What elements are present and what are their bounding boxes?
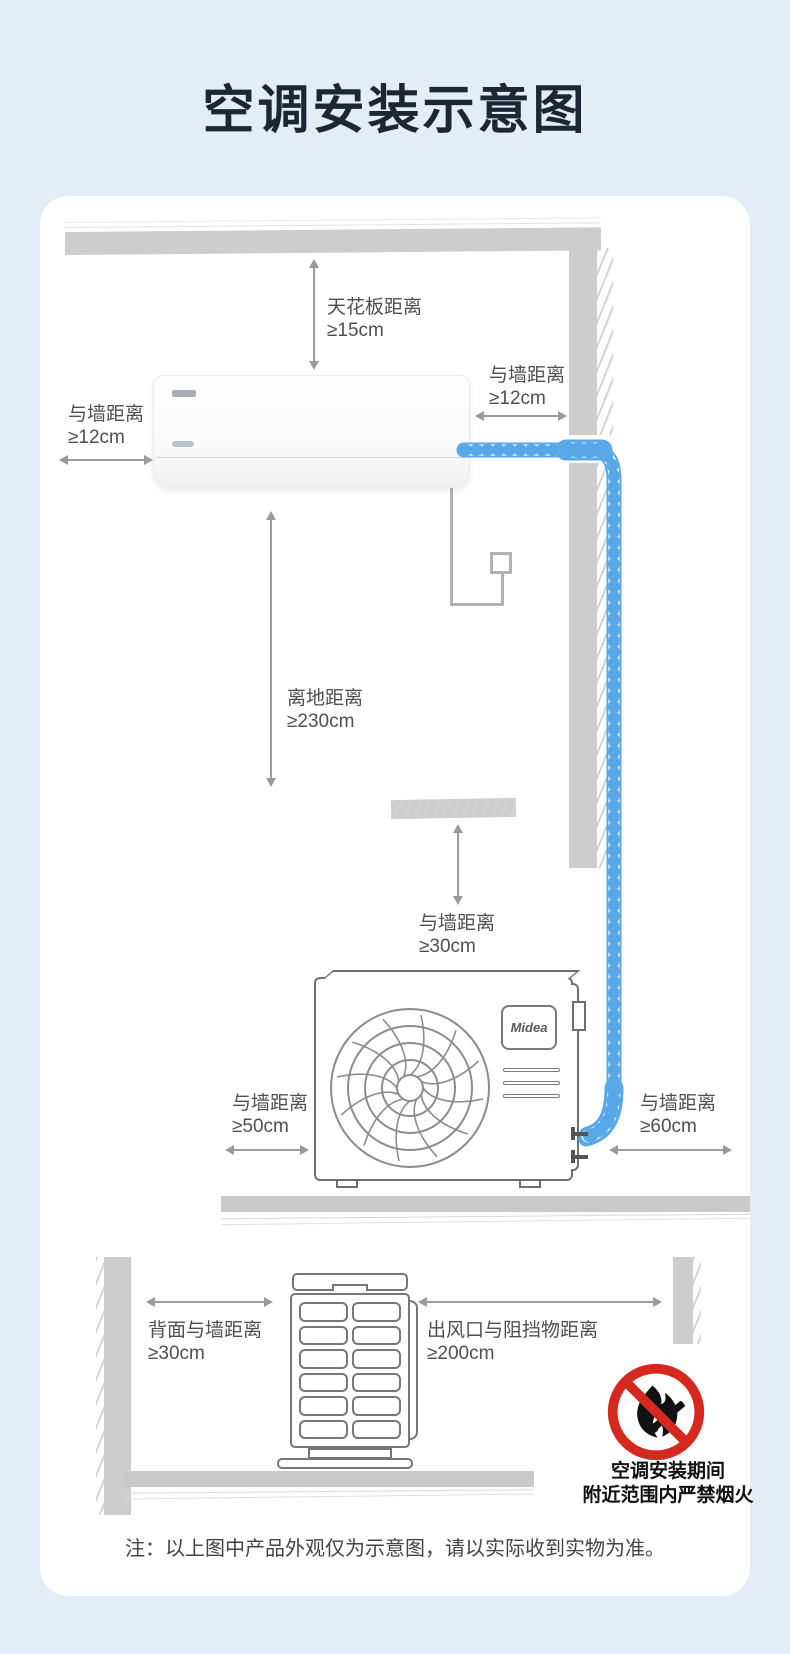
diagram-card: 天花板距离 ≥15cm 与墙距离 ≥12cm 与墙距离 ≥12cm 离地距离 ≥… — [40, 196, 750, 1596]
power-cord-drop — [450, 488, 453, 606]
outlet-distance-arrow — [427, 1301, 653, 1303]
topview-unit — [290, 1293, 410, 1448]
indoor-unit — [153, 375, 470, 488]
outdoor-unit-bracket — [572, 1001, 586, 1031]
topview-grille-cell — [352, 1373, 401, 1393]
outdoor-right-distance-label: 与墙距离 ≥60cm — [640, 1092, 716, 1138]
floor-distance-arrow — [270, 520, 272, 778]
topview-grille-cell — [352, 1420, 401, 1440]
obstacle-wall-hatch — [693, 1257, 701, 1344]
topview-unit-pedestal-base — [277, 1458, 413, 1469]
mounting-shelf — [391, 798, 516, 819]
midea-logo-badge: Midea — [501, 1005, 557, 1050]
topview-unit-cap — [292, 1273, 408, 1291]
right-wall-upper — [569, 248, 597, 435]
no-open-flame-icon — [603, 1359, 709, 1465]
topview-grille-cell — [299, 1326, 348, 1346]
warning-caption: 空调安装期间 附近范围内严禁烟火 — [582, 1460, 753, 1508]
right-wall-distance-label: 与墙距离 ≥12cm — [489, 364, 565, 410]
floor-distance-label: 离地距离 ≥230cm — [287, 687, 363, 733]
obstacle-wall — [673, 1257, 693, 1344]
outdoor-unit: Midea — [314, 977, 573, 1181]
back-wall-distance-arrow — [155, 1301, 264, 1303]
page-background: 空调安装示意图 天花板距离 ≥15cm 与墙距离 ≥12cm 与墙距离 — [0, 0, 790, 1654]
outdoor-left-distance-arrow — [234, 1149, 300, 1151]
outdoor-left-distance-label: 与墙距离 ≥50cm — [232, 1092, 308, 1138]
topview-grille-cell — [299, 1373, 348, 1393]
outdoor-unit-foot — [519, 1179, 541, 1188]
topview-grille-cell — [352, 1349, 401, 1369]
topview-unit-notch — [332, 1284, 368, 1291]
outdoor-unit-louver — [503, 1068, 560, 1072]
left-wall-distance-arrow — [68, 459, 144, 461]
right-wall-lower — [569, 463, 597, 868]
outdoor-unit-louver — [503, 1081, 560, 1085]
power-cord-plug — [501, 574, 504, 606]
page-title: 空调安装示意图 — [0, 68, 790, 143]
back-wall-distance-label: 背面与墙距离 ≥30cm — [148, 1319, 262, 1365]
indoor-unit-logo-mark — [172, 441, 194, 447]
ground-platform — [221, 1196, 750, 1212]
left-wall-distance-label: 与墙距离 ≥12cm — [68, 403, 144, 449]
ceiling-distance-label: 天花板距离 ≥15cm — [327, 296, 422, 342]
topview-grille-cell — [299, 1420, 348, 1440]
right-wall-lower-hatch — [597, 463, 613, 868]
indoor-unit-brand-mark — [172, 390, 196, 397]
topview-grille-cell — [352, 1302, 401, 1322]
floor — [125, 1471, 534, 1487]
outdoor-unit-top-face — [323, 970, 581, 979]
topview-grille-cell — [299, 1396, 348, 1416]
topview-grille-cell — [352, 1326, 401, 1346]
ceiling-distance-arrow — [313, 268, 315, 361]
outlet-distance-label: 出风口与阻挡物距离 ≥200cm — [427, 1319, 598, 1365]
outdoor-top-distance-arrow — [457, 833, 459, 896]
outdoor-unit-louver — [503, 1094, 560, 1098]
topview-grille-cell — [299, 1302, 348, 1322]
right-wall-upper-hatch — [597, 248, 613, 435]
right-wall-distance-arrow — [484, 415, 558, 417]
topview-grille-cell — [352, 1396, 401, 1416]
ceiling — [65, 227, 601, 255]
left-wall-hatch — [96, 1257, 104, 1515]
outdoor-unit-fan — [325, 1003, 495, 1173]
midea-logo-text: Midea — [511, 1020, 548, 1035]
outdoor-right-distance-arrow — [618, 1149, 723, 1151]
power-cord-run — [450, 603, 504, 606]
note-text: 注：以上图中产品外观仅为示意图，请以实际收到实物为准。 — [40, 1532, 750, 1561]
topview-unit-side — [410, 1300, 418, 1440]
outdoor-unit-foot — [336, 1179, 358, 1188]
topview-grille-cell — [299, 1349, 348, 1369]
outdoor-top-distance-label: 与墙距离 ≥30cm — [419, 912, 495, 958]
power-socket — [490, 552, 512, 574]
